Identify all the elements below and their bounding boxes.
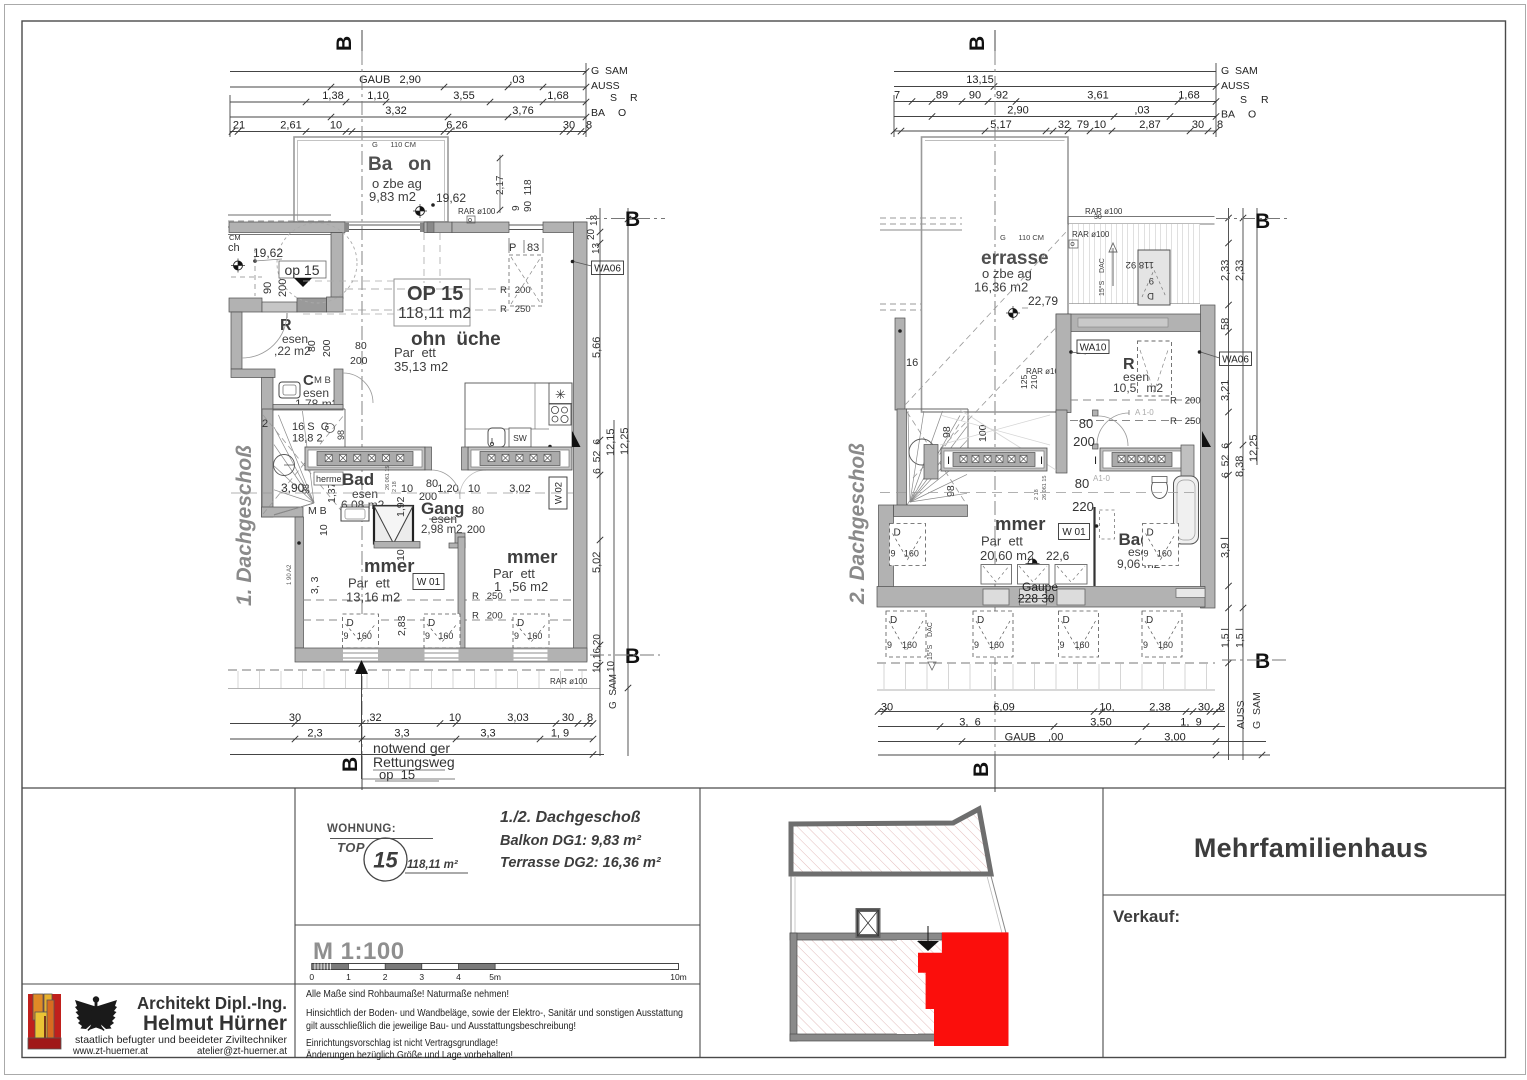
svg-text:200: 200 — [1073, 434, 1095, 449]
svg-text:83: 83 — [527, 242, 539, 254]
svg-text:89: 89 — [936, 90, 948, 102]
svg-text:4: 4 — [456, 972, 461, 982]
svg-text:M 1:100: M 1:100 — [313, 938, 405, 965]
svg-text:9: 9 — [1144, 549, 1149, 559]
svg-text:13,16 m2: 13,16 m2 — [346, 590, 400, 605]
svg-text:,8: ,8 — [1215, 702, 1224, 714]
svg-text:WOHNUNG:: WOHNUNG: — [327, 823, 396, 835]
svg-text:CM: CM — [229, 233, 241, 242]
svg-text:13: 13 — [591, 242, 602, 254]
svg-text:160: 160 — [904, 549, 919, 559]
svg-text:RAR ø100: RAR ø100 — [1072, 230, 1110, 239]
svg-text:3: 3 — [419, 972, 424, 982]
svg-text:S: S — [1240, 94, 1247, 106]
svg-text:1, 9: 1, 9 — [1180, 717, 1201, 729]
svg-text:8,38: 8,38 — [1234, 456, 1246, 477]
svg-text:I: I — [1040, 455, 1043, 467]
svg-text:M B: M B — [308, 505, 327, 517]
svg-text:3,50: 3,50 — [1090, 717, 1111, 729]
svg-text:1: 1 — [346, 972, 351, 982]
svg-text:8: 8 — [586, 120, 592, 132]
svg-text:mmer: mmer — [364, 555, 414, 576]
svg-text:D: D — [1147, 290, 1154, 301]
svg-text:W 01: W 01 — [1062, 527, 1086, 538]
svg-text:RAR ø100: RAR ø100 — [550, 677, 588, 686]
svg-text:210: 210 — [1029, 375, 1039, 389]
svg-text:Architekt Dipl.-Ing.: Architekt Dipl.-Ing. — [137, 993, 287, 1013]
svg-text:G SAM: G SAM — [591, 65, 628, 77]
svg-text:13,15: 13,15 — [966, 74, 994, 86]
svg-text:6,26: 6,26 — [446, 120, 467, 132]
svg-text:98: 98 — [336, 430, 346, 440]
svg-text:3,3: 3,3 — [394, 728, 409, 740]
svg-text:2 18: 2 18 — [392, 481, 398, 492]
svg-text:Änderungen bezüglich Größe und: Änderungen bezüglich Größe und Lage vorb… — [306, 1049, 513, 1061]
svg-text:WA10: WA10 — [1080, 342, 1107, 353]
svg-text:R: R — [630, 92, 638, 104]
svg-text:16: 16 — [906, 357, 918, 369]
svg-text:19,62: 19,62 — [436, 191, 466, 205]
svg-text:herme: herme — [316, 474, 342, 484]
svg-text:26 061 15: 26 061 15 — [1042, 476, 1048, 500]
svg-text:5,66: 5,66 — [591, 337, 603, 358]
svg-text:9: 9 — [1060, 640, 1065, 650]
svg-text:mmer: mmer — [995, 513, 1045, 534]
svg-text:10: 10 — [330, 120, 342, 132]
svg-text:G SAM: G SAM — [608, 674, 619, 709]
svg-text:Ba on: Ba on — [368, 154, 431, 175]
svg-text:5,17: 5,17 — [990, 119, 1011, 131]
svg-text:2,87: 2,87 — [1139, 119, 1160, 131]
svg-text:B: B — [1255, 650, 1270, 673]
svg-text:WA06: WA06 — [594, 263, 621, 274]
svg-text:80: 80 — [355, 340, 367, 352]
svg-text:10,5 m2: 10,5 m2 — [1113, 381, 1163, 395]
svg-text:B: B — [625, 208, 640, 231]
svg-text:2 18: 2 18 — [1034, 489, 1040, 500]
svg-text:10: 10 — [318, 524, 330, 536]
svg-text:10: 10 — [449, 712, 461, 724]
svg-text:3,61: 3,61 — [1087, 90, 1108, 102]
svg-text:B: B — [966, 36, 989, 51]
svg-text:R 250: R 250 — [1170, 416, 1201, 427]
svg-text:16,36 m2: 16,36 m2 — [974, 280, 1028, 295]
svg-text:AUSS: AUSS — [591, 80, 620, 92]
svg-text:80: 80 — [1075, 476, 1089, 491]
svg-text:2,38: 2,38 — [1149, 702, 1170, 714]
svg-text:58: 58 — [1220, 318, 1232, 330]
svg-text:12,15: 12,15 — [605, 428, 617, 456]
svg-text:15: 15 — [373, 848, 398, 873]
svg-text:2: 2 — [262, 418, 268, 430]
svg-text:160: 160 — [438, 631, 453, 641]
svg-text:mmer: mmer — [507, 546, 557, 567]
svg-text:10: 10 — [1094, 119, 1106, 131]
svg-text:D: D — [977, 615, 984, 626]
svg-text:ch: ch — [228, 242, 240, 254]
svg-text:2,90: 2,90 — [1007, 105, 1028, 117]
svg-text:✳: ✳ — [555, 387, 566, 402]
svg-text:O: O — [1248, 109, 1256, 121]
svg-text:AUSS: AUSS — [1235, 700, 1247, 729]
svg-text:30: 30 — [881, 702, 893, 714]
svg-text:9,83 m2: 9,83 m2 — [369, 189, 416, 204]
svg-text:WA06: WA06 — [1222, 354, 1249, 365]
svg-text:1,38: 1,38 — [322, 90, 343, 102]
svg-text:118,11 m2: 118,11 m2 — [398, 305, 471, 322]
svg-text:staatlich befugter und beeidet: staatlich befugter und beeideter Zivilte… — [75, 1034, 287, 1046]
svg-text:Terrasse DG2: 16,36 m²: Terrasse DG2: 16,36 m² — [500, 855, 662, 871]
svg-text:R 200: R 200 — [500, 285, 531, 296]
svg-text:118 92: 118 92 — [1126, 259, 1154, 270]
svg-text:9: 9 — [425, 631, 430, 641]
svg-text:16 S G: 16 S G — [292, 421, 329, 433]
svg-text:R 200: R 200 — [472, 611, 503, 622]
svg-text:30: 30 — [1198, 702, 1210, 714]
svg-text:3,76: 3,76 — [512, 105, 533, 117]
svg-text:9: 9 — [891, 549, 896, 559]
svg-text:2: 2 — [383, 972, 388, 982]
svg-text:A1-0: A1-0 — [1093, 474, 1110, 483]
svg-text:20: 20 — [586, 228, 597, 240]
svg-text:1 90 A2: 1 90 A2 — [287, 564, 293, 585]
svg-text:80: 80 — [306, 340, 318, 352]
svg-text:9: 9 — [887, 640, 892, 650]
svg-text:1, 9: 1, 9 — [551, 728, 569, 740]
svg-text:atelier@zt-huerner.at: atelier@zt-huerner.at — [197, 1046, 287, 1057]
svg-text:G 110 CM: G 110 CM — [372, 140, 416, 149]
svg-text:W 01: W 01 — [417, 577, 441, 588]
svg-text:,32: ,32 — [366, 712, 381, 724]
svg-text:79: 79 — [1077, 119, 1089, 131]
svg-text:30: 30 — [562, 712, 574, 724]
svg-text:P: P — [509, 242, 516, 254]
svg-text:Verkauf:: Verkauf: — [1113, 907, 1180, 926]
svg-text:1./2. Dachgeschoß: 1./2. Dachgeschoß — [500, 809, 641, 826]
svg-text:9: 9 — [974, 640, 979, 650]
svg-text:2,17: 2,17 — [495, 175, 506, 195]
svg-text:2. Dachgeschoß: 2. Dachgeschoß — [846, 443, 869, 605]
svg-text:3,3: 3,3 — [480, 728, 495, 740]
svg-text:Mehrfamilienhaus: Mehrfamilienhaus — [1194, 833, 1428, 863]
svg-text:,03: ,03 — [509, 74, 524, 86]
svg-text:160: 160 — [1157, 549, 1172, 559]
svg-text:gilt ausschließlich die jeweil: gilt ausschließlich die jeweilige Bau- u… — [306, 1020, 576, 1032]
svg-text:10: 10 — [606, 660, 617, 672]
svg-text:10m: 10m — [670, 972, 687, 982]
svg-text:9: 9 — [1143, 640, 1148, 650]
svg-text:200: 200 — [321, 339, 333, 357]
svg-text:1,68: 1,68 — [547, 90, 568, 102]
svg-text:M B: M B — [314, 375, 331, 386]
svg-text:30: 30 — [289, 712, 301, 724]
svg-text:op 15: op 15 — [284, 262, 319, 278]
svg-text:8: 8 — [587, 712, 593, 724]
svg-text:8: 8 — [1217, 119, 1223, 131]
svg-text:2,33: 2,33 — [1234, 260, 1246, 281]
svg-text:80: 80 — [1079, 416, 1093, 431]
svg-text:118,11 m²: 118,11 m² — [407, 859, 459, 871]
svg-text:B: B — [333, 36, 356, 51]
svg-text:R 200: R 200 — [1170, 396, 1201, 407]
svg-text:D: D — [517, 618, 524, 629]
svg-text:80: 80 — [426, 478, 438, 490]
svg-text:125: 125 — [1019, 375, 1029, 389]
svg-text:15°S DAC: 15°S DAC — [1098, 258, 1106, 296]
svg-text:3,32: 3,32 — [385, 105, 406, 117]
svg-text:TOP: TOP — [337, 840, 365, 855]
svg-text:I: I — [1094, 455, 1097, 467]
svg-text:26 061 15: 26 061 15 — [385, 466, 391, 490]
svg-text:15°S DAC: 15°S DAC — [926, 622, 934, 660]
svg-text:220: 220 — [1072, 499, 1094, 514]
svg-text:6,09: 6,09 — [993, 702, 1014, 714]
svg-text:160: 160 — [357, 631, 372, 641]
svg-text:G SAM: G SAM — [1251, 692, 1263, 729]
svg-text:D: D — [894, 528, 901, 539]
svg-text:200: 200 — [277, 279, 289, 297]
svg-text:3,55: 3,55 — [453, 90, 474, 102]
svg-text:3, 6: 3, 6 — [959, 717, 980, 729]
svg-text:200: 200 — [467, 524, 485, 536]
svg-text:22,6: 22,6 — [1046, 549, 1070, 563]
svg-text:D: D — [347, 618, 354, 629]
svg-text:30: 30 — [563, 120, 575, 132]
svg-text:3, 3: 3, 3 — [309, 576, 321, 594]
svg-text:2,61: 2,61 — [280, 120, 301, 132]
svg-text:Par ett: Par ett — [394, 345, 436, 360]
svg-text:,03: ,03 — [1134, 105, 1149, 117]
svg-text:I: I — [947, 455, 950, 467]
svg-text:B: B — [339, 757, 362, 772]
svg-text:3,9 l: 3,9 l — [1220, 537, 1232, 558]
svg-text:R: R — [1261, 94, 1269, 106]
svg-text:Einrichtungsvorschlag ist nich: Einrichtungsvorschlag ist nicht Vertrags… — [306, 1037, 498, 1049]
svg-text:6 52 6: 6 52 6 — [1220, 443, 1232, 478]
svg-text:1 ,56 m2: 1 ,56 m2 — [494, 579, 548, 594]
svg-text:G SAM: G SAM — [1221, 65, 1258, 77]
svg-text:6 52 6: 6 52 6 — [591, 439, 603, 474]
svg-text:Helmut Hürner: Helmut Hürner — [143, 1012, 287, 1035]
svg-text:98: 98 — [945, 485, 957, 497]
svg-text:D: D — [428, 618, 435, 629]
svg-text:200: 200 — [350, 355, 368, 367]
svg-text:98: 98 — [301, 484, 311, 494]
svg-text:D: D — [1147, 528, 1154, 539]
svg-text:160: 160 — [527, 631, 542, 641]
svg-text:7: 7 — [894, 90, 900, 102]
svg-text:19,62: 19,62 — [253, 246, 283, 260]
svg-text:3,21: 3,21 — [1220, 380, 1232, 401]
svg-text:10,16,20: 10,16,20 — [592, 634, 603, 673]
svg-text:Hinsichtlich der Boden- und Wa: Hinsichtlich der Boden- und Wandbeläge, … — [306, 1007, 683, 1019]
svg-text:op 15: op 15 — [379, 767, 415, 782]
svg-text:1,10: 1,10 — [367, 90, 388, 102]
svg-text:Par ett: Par ett — [348, 576, 390, 591]
svg-text:G 110 CM: G 110 CM — [1000, 233, 1044, 242]
svg-text:92: 92 — [996, 90, 1008, 102]
svg-text:35,13 m2: 35,13 m2 — [394, 359, 448, 374]
svg-text:9: 9 — [511, 205, 522, 211]
svg-text:13: 13 — [589, 214, 600, 226]
svg-text:30: 30 — [1094, 214, 1102, 221]
svg-text:90: 90 — [969, 90, 981, 102]
svg-text:www.zt-huerner.at: www.zt-huerner.at — [72, 1046, 148, 1057]
svg-text:18,8 2: 18,8 2 — [292, 433, 323, 445]
svg-text:BA: BA — [1221, 109, 1235, 121]
svg-text:9: 9 — [514, 631, 519, 641]
svg-text:9: 9 — [344, 631, 349, 641]
svg-text:12,25: 12,25 — [1248, 434, 1260, 462]
svg-text:32: 32 — [1058, 119, 1070, 131]
svg-text:10,: 10, — [1099, 702, 1114, 714]
svg-text:5m: 5m — [489, 972, 501, 982]
svg-text:1,92: 1,92 — [395, 496, 407, 517]
svg-text:1,5 l: 1,5 l — [1220, 628, 1232, 648]
svg-text:GAUB ,00: GAUB ,00 — [1005, 732, 1064, 744]
svg-text:2,83: 2,83 — [396, 615, 408, 636]
svg-text:Par ett: Par ett — [981, 534, 1023, 549]
svg-text:2,3: 2,3 — [307, 728, 322, 740]
svg-text:O: O — [618, 107, 626, 119]
svg-text:3,03: 3,03 — [507, 712, 528, 724]
svg-text:90: 90 — [262, 282, 274, 294]
svg-text:A 1-0: A 1-0 — [1135, 408, 1154, 417]
svg-text:GAUB 2,90: GAUB 2,90 — [359, 74, 421, 86]
svg-text:1,5 l: 1,5 l — [1234, 628, 1246, 648]
svg-text:3,00: 3,00 — [1164, 732, 1185, 744]
svg-text:S: S — [610, 92, 617, 104]
svg-text:2,33: 2,33 — [1220, 260, 1232, 281]
svg-text:1. Dachgeschoß: 1. Dachgeschoß — [233, 445, 256, 606]
svg-text:D: D — [890, 615, 897, 626]
svg-text:BA: BA — [591, 107, 605, 119]
svg-text:90 118: 90 118 — [523, 179, 534, 212]
svg-text:98: 98 — [941, 426, 953, 438]
svg-text:RAR ø100: RAR ø100 — [1085, 207, 1123, 216]
svg-text:22,79: 22,79 — [1028, 294, 1058, 308]
svg-text:B: B — [625, 645, 640, 668]
svg-text:12,25: 12,25 — [619, 427, 631, 455]
svg-text:AUSS: AUSS — [1221, 80, 1250, 92]
svg-text:5,02: 5,02 — [591, 552, 603, 573]
svg-text:D: D — [1063, 615, 1070, 626]
svg-text:D: D — [1146, 615, 1153, 626]
svg-text:RAR ø100: RAR ø100 — [458, 207, 496, 216]
svg-text:B: B — [970, 762, 993, 777]
svg-text:0: 0 — [309, 972, 314, 982]
svg-text:21: 21 — [233, 120, 245, 132]
svg-text:SW: SW — [513, 433, 527, 443]
svg-text:1,68: 1,68 — [1178, 90, 1199, 102]
svg-text:OP 15: OP 15 — [407, 283, 463, 305]
svg-text:30: 30 — [1192, 119, 1204, 131]
svg-text:Alle Maße sind Rohbaumaße! Nat: Alle Maße sind Rohbaumaße! Naturmaße neh… — [306, 988, 509, 1000]
svg-text:B: B — [1255, 210, 1270, 233]
svg-text:20,60 m2: 20,60 m2 — [980, 548, 1034, 563]
svg-text:80: 80 — [472, 505, 484, 517]
svg-text:Balkon DG1: 9,83 m²: Balkon DG1: 9,83 m² — [500, 833, 642, 849]
